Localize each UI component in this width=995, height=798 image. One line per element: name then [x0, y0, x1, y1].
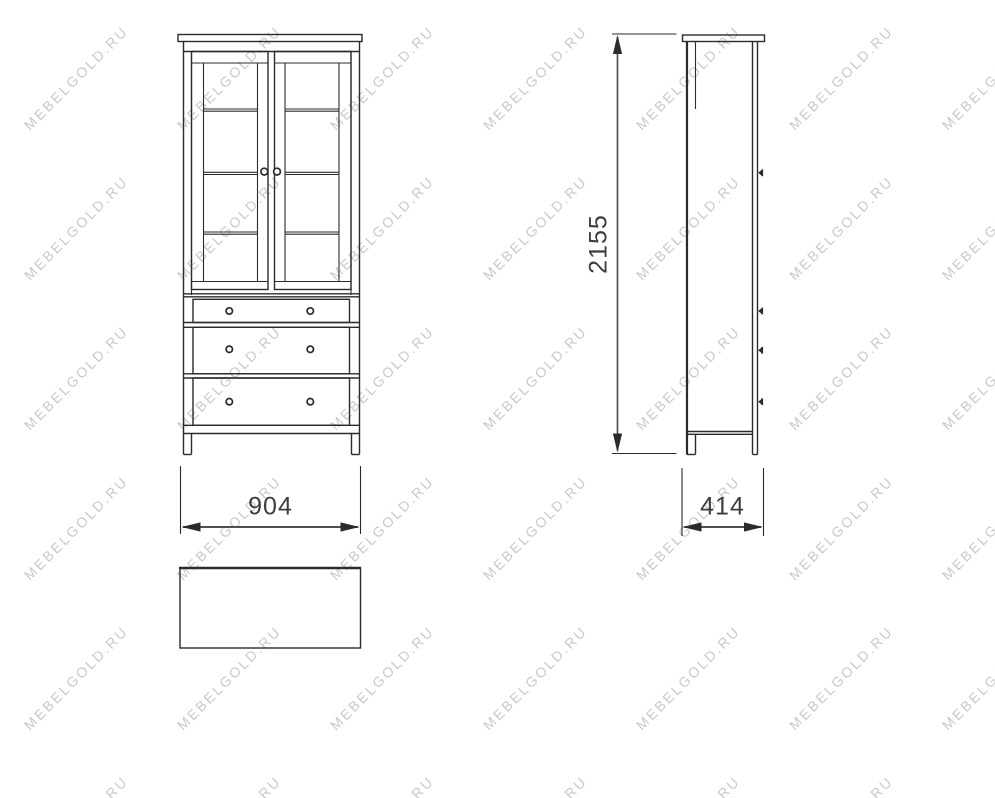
height-dimension: [612, 34, 677, 454]
arrow-right-icon: [744, 522, 763, 531]
arrow-left-icon: [182, 522, 201, 531]
arrow-up-icon: [613, 35, 622, 54]
depth-dimension-label: 414: [700, 493, 745, 522]
drawer-bottom: [193, 378, 350, 425]
door-knob-right: [274, 168, 281, 175]
door-knob-left: [261, 168, 268, 175]
drawer-top: [193, 299, 350, 322]
width-dimension-label: 904: [248, 493, 293, 522]
top-view: [179, 568, 361, 648]
glass-door-left: [192, 52, 269, 290]
arrow-left-icon: [683, 522, 702, 531]
arrow-right-icon: [341, 522, 360, 531]
glass-door-right: [275, 52, 352, 290]
side-top-cap: [683, 35, 765, 42]
front-top-cap: [178, 35, 362, 42]
arrow-down-icon: [613, 434, 622, 453]
side-knobs: [758, 169, 762, 405]
furniture-dimension-diagram: MEBELGOLD.RUMEBELGOLD.RUMEBELGOLD.RUMEBE…: [0, 0, 995, 798]
drawer-middle: [193, 327, 350, 374]
cabinet-technical-drawing: [0, 0, 995, 798]
front-view: [178, 35, 362, 455]
side-view: [683, 35, 765, 455]
front-legs: [184, 434, 360, 455]
height-dimension-label: 2155: [585, 214, 614, 274]
